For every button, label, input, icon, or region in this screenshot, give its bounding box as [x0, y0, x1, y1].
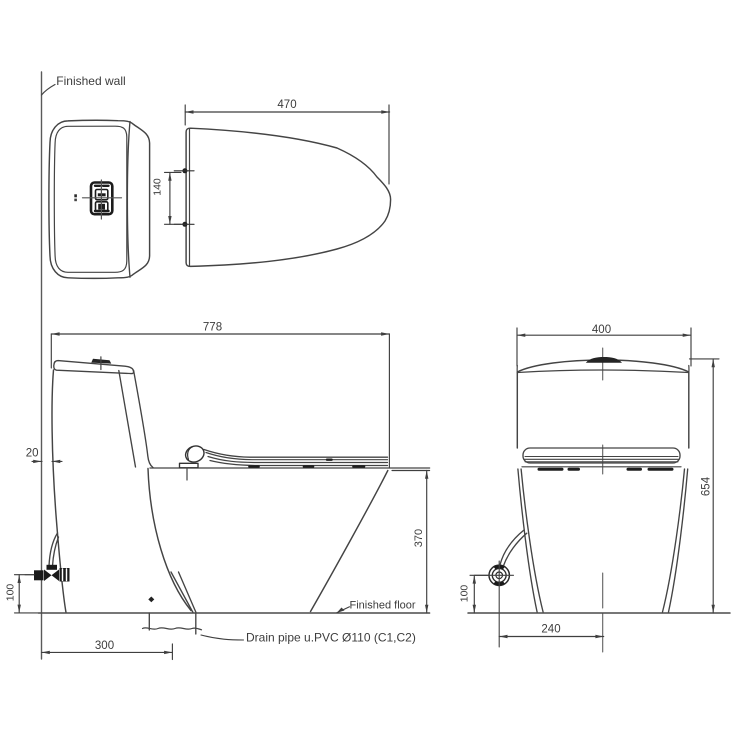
svg-text:654: 654 [701, 476, 713, 496]
svg-text:Finished floor: Finished floor [350, 599, 416, 611]
svg-text:470: 470 [277, 99, 296, 111]
svg-text:100: 100 [458, 585, 470, 603]
svg-text:778: 778 [203, 321, 222, 333]
svg-text:Finished wall: Finished wall [56, 74, 125, 88]
svg-text:300: 300 [95, 640, 114, 652]
svg-text:Drain pipe u.PVC Ø110 (C1,C2): Drain pipe u.PVC Ø110 (C1,C2) [246, 630, 416, 644]
svg-text:400: 400 [592, 324, 611, 336]
svg-text:20: 20 [26, 448, 39, 460]
svg-text:240: 240 [541, 623, 560, 635]
svg-text:140: 140 [152, 178, 164, 196]
svg-text:100: 100 [4, 584, 16, 602]
svg-text:370: 370 [413, 529, 425, 547]
